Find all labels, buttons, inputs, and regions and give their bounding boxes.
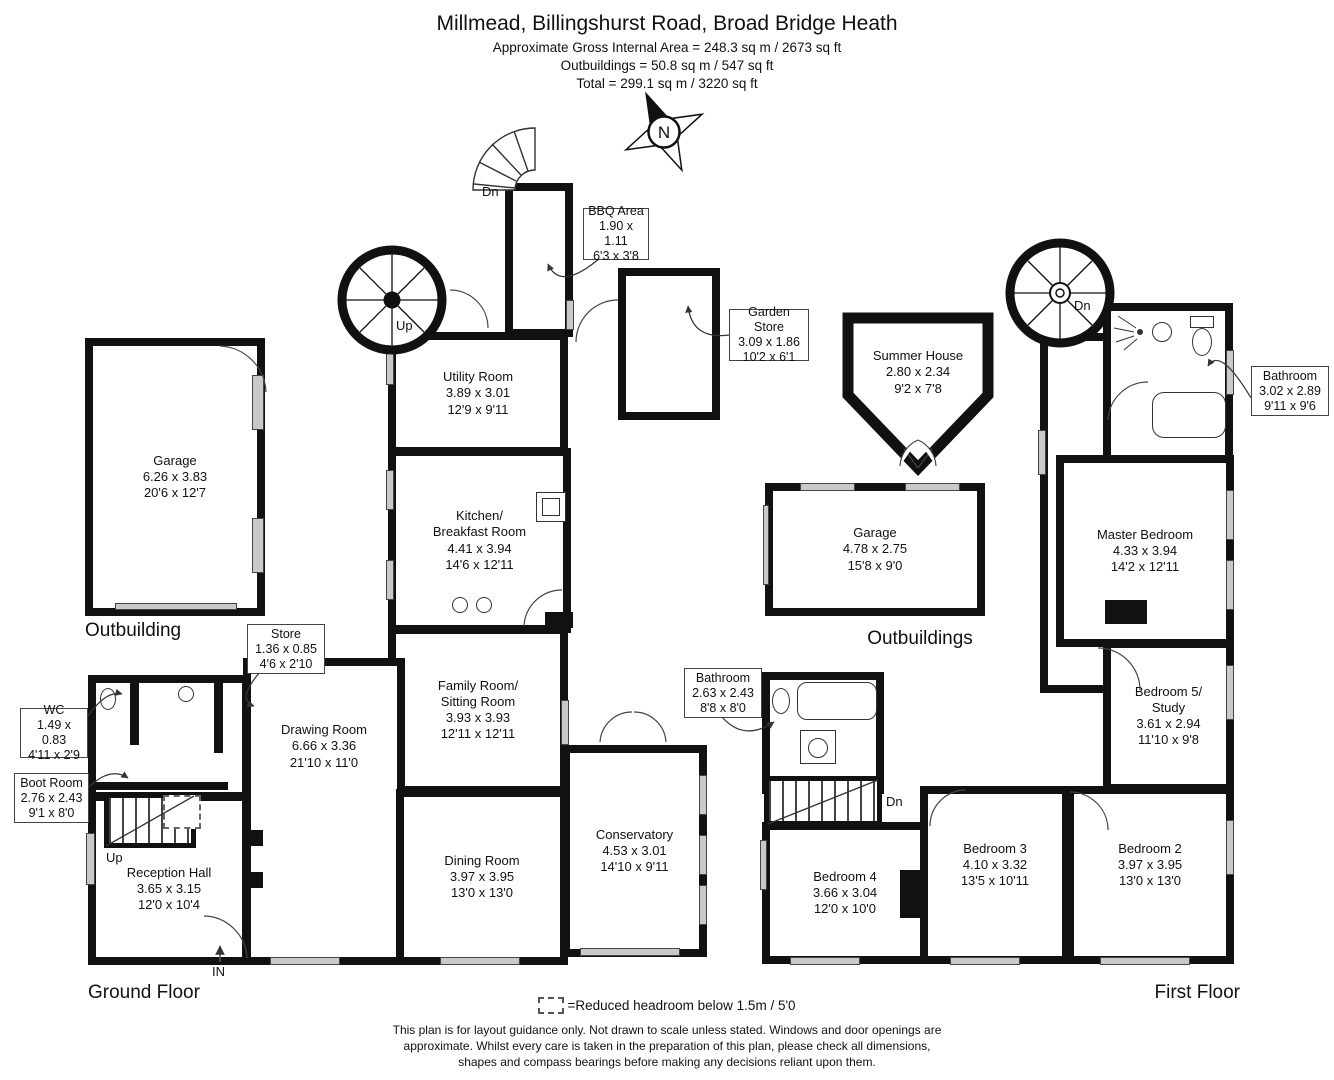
room-dim-imperial: 12'0 x 10'4 xyxy=(127,897,212,913)
callout-boot-room: Boot Room 2.76 x 2.43 9'1 x 8'0 xyxy=(14,773,89,823)
room-name: Kitchen/ Breakfast Room xyxy=(433,508,526,541)
room-dim-metric: 3.66 x 3.04 xyxy=(813,885,877,901)
wall-segment xyxy=(243,872,263,888)
window xyxy=(1100,957,1190,965)
gross-area-line: Approximate Gross Internal Area = 248.3 … xyxy=(0,40,1334,55)
spiral-staircase-icon xyxy=(1010,243,1110,343)
callout-dim-imperial: 4'11 x 2'9 xyxy=(24,748,84,763)
wall-segment xyxy=(900,870,926,918)
stair-label-dn-spiral-ff: Dn xyxy=(1074,298,1091,313)
reduced-headroom-area xyxy=(163,795,201,829)
callout-name: Boot Room xyxy=(20,776,83,791)
room-label: Master Bedroom 4.33 x 3.94 14'2 x 12'11 xyxy=(1097,527,1193,576)
window xyxy=(1038,430,1046,475)
floorplan-canvas: Millmead, Billingshurst Road, Broad Brid… xyxy=(0,0,1334,1080)
hob-ring-icon xyxy=(476,597,492,613)
window xyxy=(760,840,767,890)
stair-label-dn-fan: Dn xyxy=(482,184,499,199)
sink-icon xyxy=(808,738,828,758)
room-dim-metric: 4.41 x 3.94 xyxy=(433,541,526,557)
sink-icon xyxy=(178,686,194,702)
room-summer-house-label: Summer House 2.80 x 2.34 9'2 x 7'8 xyxy=(848,348,988,397)
room-label: Reception Hall 3.65 x 3.15 12'0 x 10'4 xyxy=(127,865,212,914)
room-name: Bedroom 2 xyxy=(1118,841,1182,857)
room-family: Family Room/ Sitting Room 3.93 x 3.93 12… xyxy=(388,626,568,794)
window xyxy=(440,957,520,965)
room-dim-imperial: 15'8 x 9'0 xyxy=(843,558,907,574)
window xyxy=(1226,665,1234,720)
room-dim-metric: 6.26 x 3.83 xyxy=(143,469,207,485)
bathtub-icon xyxy=(1152,392,1226,438)
room-label: Garage 6.26 x 3.83 20'6 x 12'7 xyxy=(143,453,207,502)
room-dim-imperial: 13'0 x 13'0 xyxy=(444,885,519,901)
callout-bathroom-1: Bathroom 3.02 x 2.89 9'11 x 9'6 xyxy=(1251,366,1329,416)
room-dim-imperial: 12'9 x 9'11 xyxy=(443,402,513,418)
outbuildings-area-line: Outbuildings = 50.8 sq m / 547 sq ft xyxy=(0,58,1334,73)
window xyxy=(699,775,707,815)
room-name: Drawing Room xyxy=(281,722,367,738)
room-bed5: Bedroom 5/ Study 3.61 x 2.94 11'10 x 9'8 xyxy=(1103,640,1234,792)
section-label-outbuilding: Outbuilding xyxy=(85,620,181,642)
room-dim-imperial: 14'6 x 12'11 xyxy=(433,557,526,573)
window xyxy=(566,300,574,330)
callout-name: BBQ Area xyxy=(587,204,645,219)
callout-bathroom-2: Bathroom 2.63 x 2.43 8'8 x 8'0 xyxy=(684,668,762,718)
room-dim-metric: 4.10 x 3.32 xyxy=(961,857,1029,873)
room-label: Utility Room 3.89 x 3.01 12'9 x 9'11 xyxy=(443,369,513,418)
hob-ring-icon xyxy=(452,597,468,613)
stair-label-up-spiral: Up xyxy=(396,318,413,333)
room-label: Conservatory 4.53 x 3.01 14'10 x 9'11 xyxy=(596,827,673,876)
callout-dim-imperial: 9'1 x 8'0 xyxy=(20,806,83,821)
window xyxy=(763,505,769,585)
callout-dim-imperial: 8'8 x 8'0 xyxy=(692,701,754,716)
window xyxy=(252,518,264,573)
room-dim-imperial: 13'0 x 13'0 xyxy=(1118,873,1182,889)
window xyxy=(699,835,707,875)
room-bed3: Bedroom 3 4.10 x 3.32 13'5 x 10'11 xyxy=(920,786,1070,964)
room-dim-metric: 3.97 x 3.95 xyxy=(444,869,519,885)
room-dim-imperial: 12'11 x 12'11 xyxy=(438,726,518,742)
room-bed2: Bedroom 2 3.97 x 3.95 13'0 x 13'0 xyxy=(1066,786,1234,964)
room-label: Bedroom 3 4.10 x 3.32 13'5 x 10'11 xyxy=(961,841,1029,890)
room-bbq-wing xyxy=(505,183,573,337)
callout-name: Garden Store xyxy=(733,305,805,335)
room-label: Bedroom 5/ Study 3.61 x 2.94 11'10 x 9'8 xyxy=(1135,684,1202,749)
room-dim-metric: 4.53 x 3.01 xyxy=(596,843,673,859)
wall-segment xyxy=(545,612,573,628)
callout-dim-metric: 1.36 x 0.85 xyxy=(255,642,317,657)
wall-segment xyxy=(1105,600,1147,624)
room-dining: Dining Room 3.97 x 3.95 13'0 x 13'0 xyxy=(396,789,568,965)
sink-icon xyxy=(1152,322,1172,342)
room-dim-metric: 2.80 x 2.34 xyxy=(848,364,988,380)
room-label: Bedroom 4 3.66 x 3.04 12'0 x 10'0 xyxy=(813,869,877,918)
room-utility: Utility Room 3.89 x 3.01 12'9 x 9'11 xyxy=(388,332,568,455)
room-dim-imperial: 13'5 x 10'11 xyxy=(961,873,1029,889)
wall-segment xyxy=(214,675,223,753)
wall-segment xyxy=(130,675,139,745)
window xyxy=(950,957,1020,965)
room-dim-metric: 4.78 x 2.75 xyxy=(843,541,907,557)
callout-name: Bathroom xyxy=(1259,369,1321,384)
compass-n-label: N xyxy=(658,123,670,142)
room-dim-imperial: 12'0 x 10'0 xyxy=(813,901,877,917)
callout-bbq: BBQ Area 1.90 x 1.11 6'3 x 3'8 xyxy=(583,208,649,260)
callout-dim-metric: 1.90 x 1.11 xyxy=(587,219,645,249)
callout-dim-metric: 1.49 x 0.83 xyxy=(24,718,84,748)
room-name: Reception Hall xyxy=(127,865,212,881)
room-name: Utility Room xyxy=(443,369,513,385)
legend-text: =Reduced headroom below 1.5m / 5'0 xyxy=(567,998,795,1013)
room-dim-metric: 3.89 x 3.01 xyxy=(443,385,513,401)
room-dim-imperial: 11'10 x 9'8 xyxy=(1135,732,1202,748)
fan-staircase-icon xyxy=(473,128,535,190)
window xyxy=(386,470,394,510)
room-name: Conservatory xyxy=(596,827,673,843)
room-label: Dining Room 3.97 x 3.95 13'0 x 13'0 xyxy=(444,853,519,902)
room-garage-right: Garage 4.78 x 2.75 15'8 x 9'0 xyxy=(765,483,985,616)
window xyxy=(86,833,95,885)
callout-dim-imperial: 4'6 x 2'10 xyxy=(255,657,317,672)
compass-icon: N xyxy=(618,86,710,178)
room-dim-metric: 4.33 x 3.94 xyxy=(1097,543,1193,559)
window xyxy=(1226,820,1234,875)
room-label: Bedroom 2 3.97 x 3.95 13'0 x 13'0 xyxy=(1118,841,1182,890)
stair-label-up-hall: Up xyxy=(106,850,123,865)
cistern-icon xyxy=(1190,316,1214,328)
window xyxy=(561,700,569,745)
room-name: Master Bedroom xyxy=(1097,527,1193,543)
callout-wc: WC 1.49 x 0.83 4'11 x 2'9 xyxy=(20,708,88,758)
section-label-outbuildings: Outbuildings xyxy=(840,628,1000,650)
window xyxy=(270,957,340,965)
staircase-ff-down xyxy=(764,776,882,826)
room-name: Bedroom 3 xyxy=(961,841,1029,857)
window xyxy=(386,350,394,385)
window xyxy=(252,375,264,430)
toilet-icon xyxy=(772,688,790,714)
room-conservatory: Conservatory 4.53 x 3.01 14'10 x 9'11 xyxy=(562,745,707,957)
room-drawing: Drawing Room 6.66 x 3.36 21'10 x 11'0 xyxy=(243,658,405,965)
callout-name: Bathroom xyxy=(692,671,754,686)
room-name: Garage xyxy=(143,453,207,469)
room-dim-metric: 3.65 x 3.15 xyxy=(127,881,212,897)
wall-segment xyxy=(243,830,263,846)
stair-label-dn-hall-ff: Dn xyxy=(886,794,903,809)
window xyxy=(1226,350,1234,395)
room-name: Family Room/ Sitting Room xyxy=(438,678,518,711)
room-dim-metric: 3.93 x 3.93 xyxy=(438,710,518,726)
room-label: Drawing Room 6.66 x 3.36 21'10 x 11'0 xyxy=(281,722,367,771)
room-dim-metric: 3.61 x 2.94 xyxy=(1135,716,1202,732)
window xyxy=(580,948,680,956)
room-name: Garage xyxy=(843,525,907,541)
callout-garden-store: Garden Store 3.09 x 1.86 10'2 x 6'1 xyxy=(729,309,809,361)
window xyxy=(790,957,860,965)
legend-row: =Reduced headroom below 1.5m / 5'0 xyxy=(0,997,1334,1014)
room-name: Dining Room xyxy=(444,853,519,869)
room-dim-imperial: 14'10 x 9'11 xyxy=(596,859,673,875)
room-name: Summer House xyxy=(848,348,988,364)
room-label: Garage 4.78 x 2.75 15'8 x 9'0 xyxy=(843,525,907,574)
room-label: Kitchen/ Breakfast Room 4.41 x 3.94 14'6… xyxy=(433,508,526,573)
room-dim-imperial: 14'2 x 12'11 xyxy=(1097,559,1193,575)
room-dim-imperial: 20'6 x 12'7 xyxy=(143,485,207,501)
callout-dim-imperial: 10'2 x 6'1 xyxy=(733,350,805,365)
room-name: Bedroom 4 xyxy=(813,869,877,885)
entrance-label: IN xyxy=(212,964,225,979)
page-title: Millmead, Billingshurst Road, Broad Brid… xyxy=(0,12,1334,36)
toilet-icon xyxy=(100,688,116,710)
wall-segment xyxy=(88,782,228,790)
bathtub-icon xyxy=(797,682,877,720)
room-label: Family Room/ Sitting Room 3.93 x 3.93 12… xyxy=(438,678,518,743)
window xyxy=(905,483,960,491)
callout-name: Store xyxy=(255,627,317,642)
callout-store: Store 1.36 x 0.85 4'6 x 2'10 xyxy=(247,624,325,674)
window xyxy=(1226,560,1234,610)
room-garden-store xyxy=(618,268,720,420)
callout-dim-metric: 3.09 x 1.86 xyxy=(733,335,805,350)
room-dim-imperial: 9'2 x 7'8 xyxy=(848,381,988,397)
reduced-headroom-icon xyxy=(538,997,564,1014)
oven-inner-icon xyxy=(542,498,560,516)
window xyxy=(1226,490,1234,540)
callout-dim-imperial: 9'11 x 9'6 xyxy=(1259,399,1321,414)
callout-dim-metric: 2.76 x 2.43 xyxy=(20,791,83,806)
window xyxy=(115,603,237,610)
room-garage-left: Garage 6.26 x 3.83 20'6 x 12'7 xyxy=(85,338,265,616)
callout-name: WC xyxy=(24,703,84,718)
callout-dim-metric: 3.02 x 2.89 xyxy=(1259,384,1321,399)
window xyxy=(800,483,855,491)
room-name: Bedroom 5/ Study xyxy=(1135,684,1202,717)
toilet-icon xyxy=(1192,328,1212,356)
window xyxy=(386,560,394,600)
callout-dim-imperial: 6'3 x 3'8 xyxy=(587,249,645,264)
window xyxy=(699,885,707,925)
room-dim-imperial: 21'10 x 11'0 xyxy=(281,755,367,771)
callout-dim-metric: 2.63 x 2.43 xyxy=(692,686,754,701)
room-dim-metric: 6.66 x 3.36 xyxy=(281,738,367,754)
room-dim-metric: 3.97 x 3.95 xyxy=(1118,857,1182,873)
disclaimer-text: This plan is for layout guidance only. N… xyxy=(387,1022,947,1071)
